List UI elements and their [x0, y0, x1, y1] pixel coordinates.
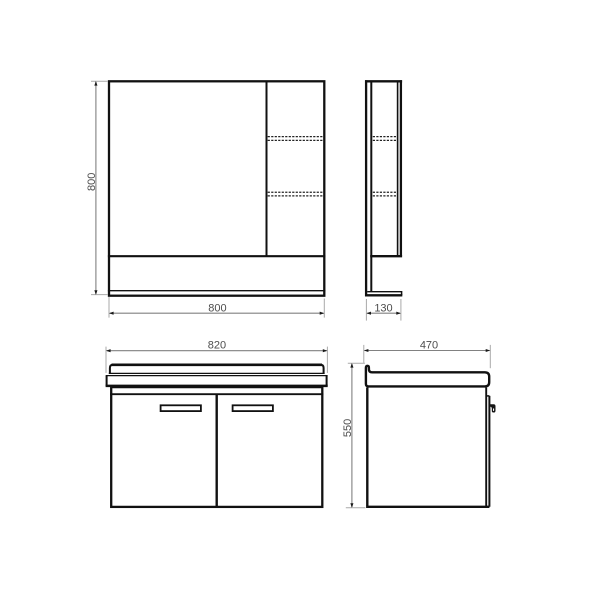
svg-text:130: 130 [374, 302, 392, 314]
svg-text:800: 800 [86, 173, 98, 191]
svg-text:820: 820 [208, 340, 226, 352]
svg-text:800: 800 [208, 303, 226, 315]
svg-text:470: 470 [420, 340, 438, 352]
svg-text:550: 550 [342, 419, 354, 437]
